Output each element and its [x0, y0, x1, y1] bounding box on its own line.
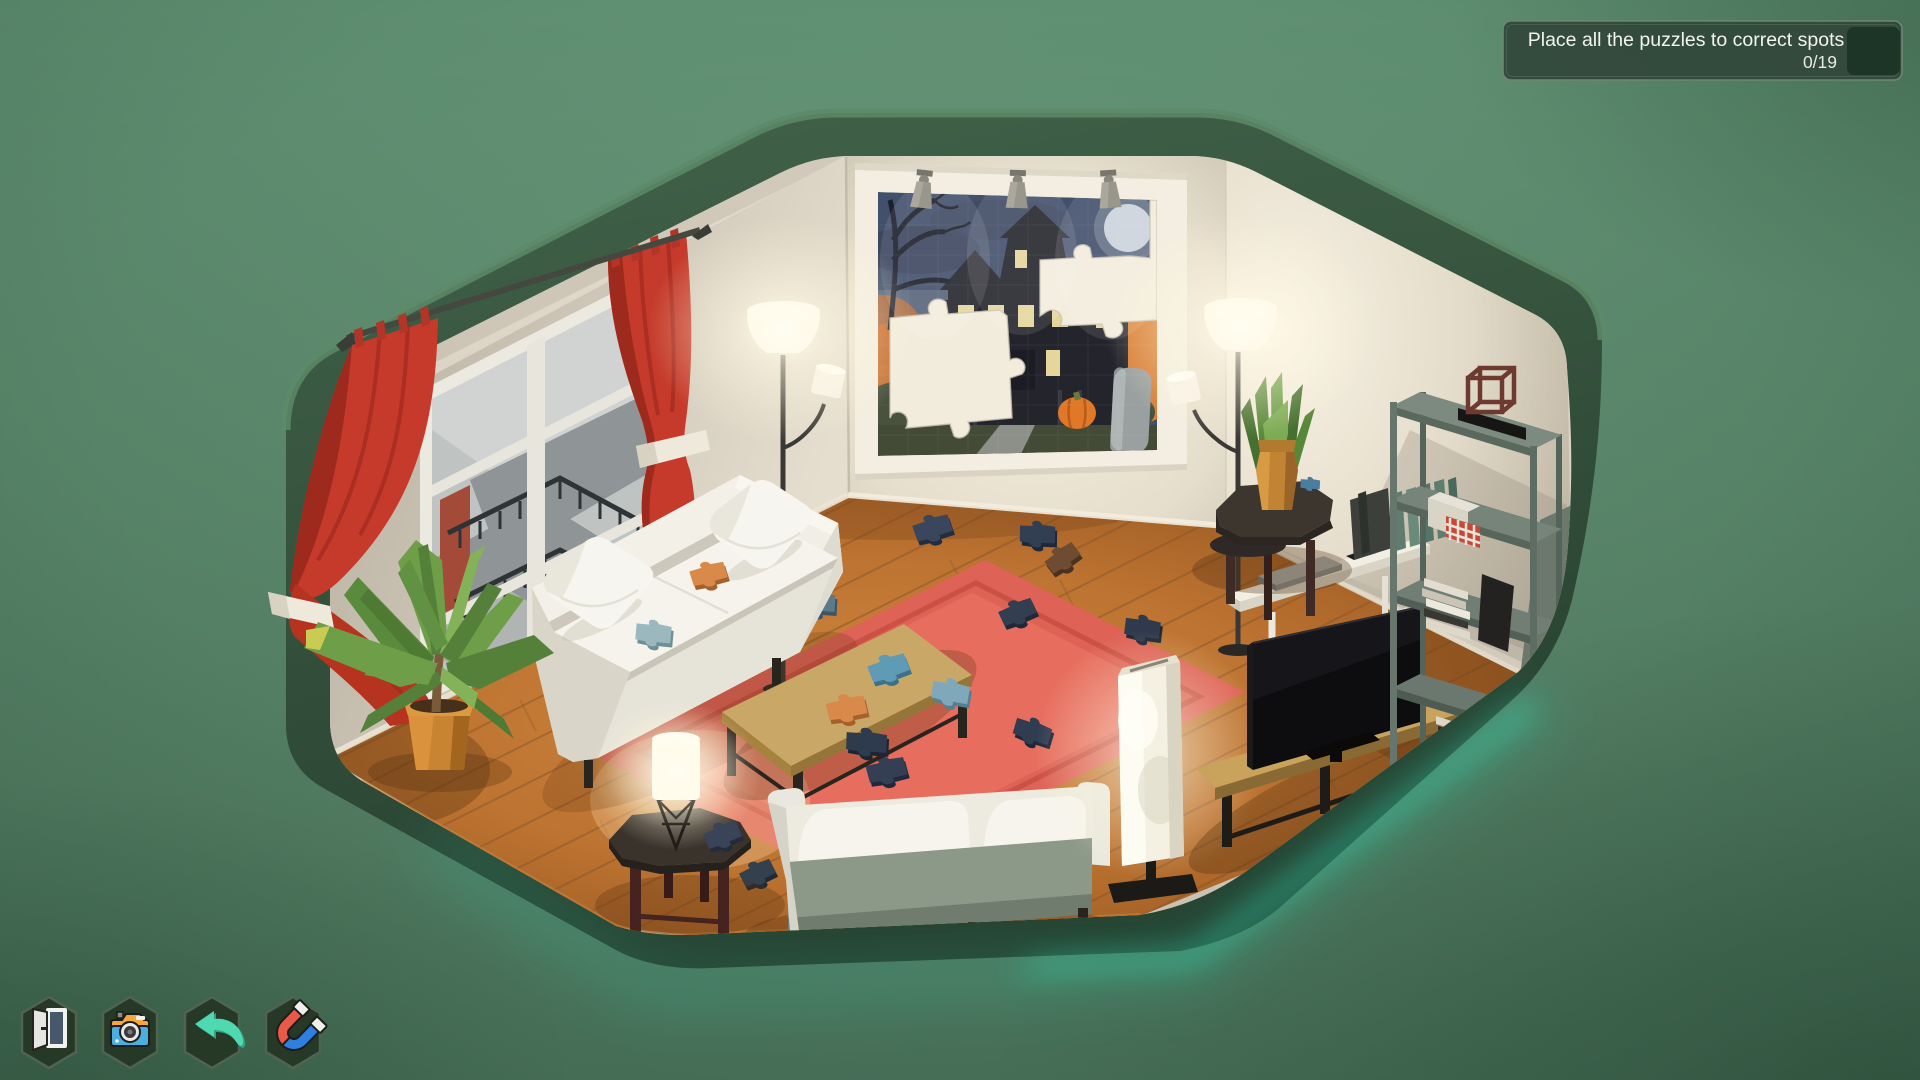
svg-text:Place all the puzzles to corre: Place all the puzzles to correct spots [1528, 29, 1845, 51]
svg-text:0/19: 0/19 [1803, 52, 1837, 72]
